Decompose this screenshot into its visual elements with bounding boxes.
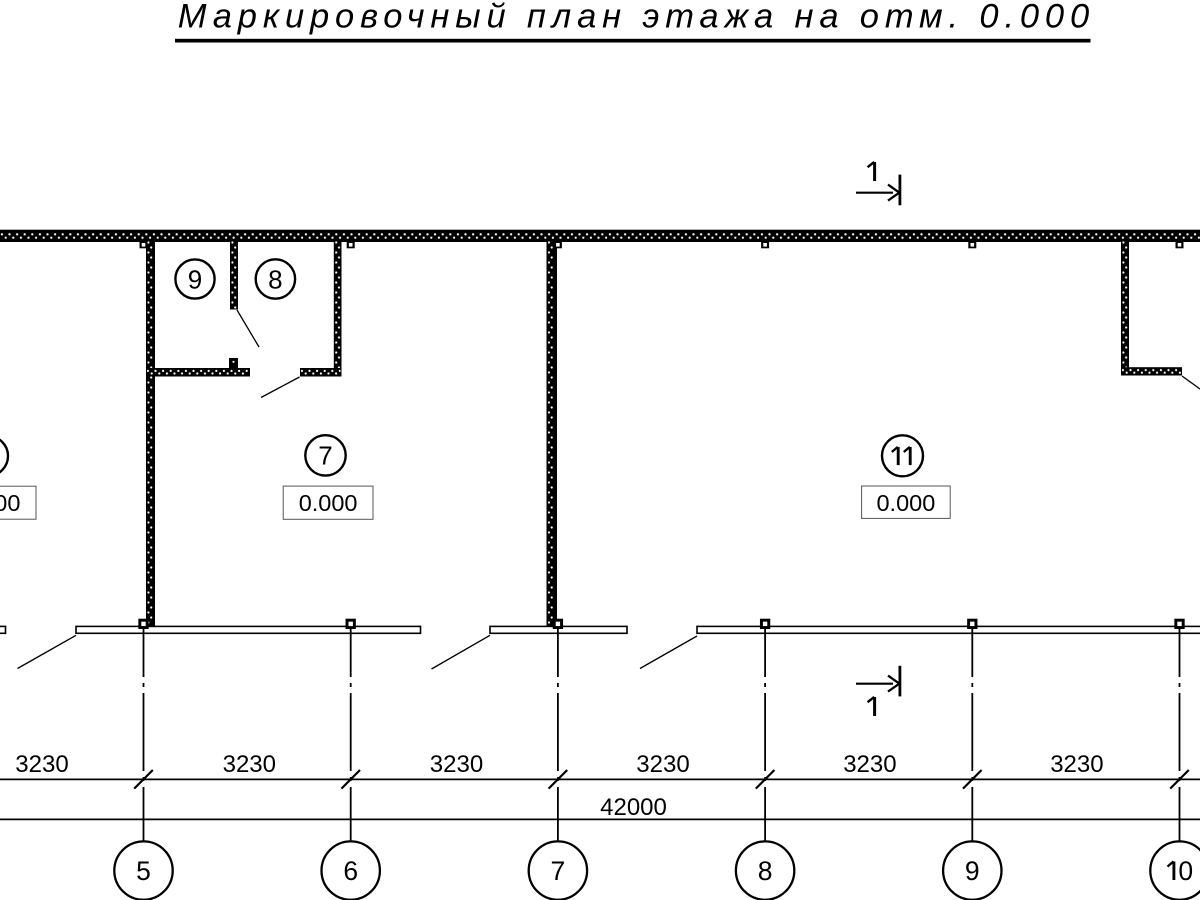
svg-text:6: 6	[343, 856, 358, 886]
svg-text:3230: 3230	[1050, 751, 1103, 778]
svg-text:5: 5	[136, 856, 151, 886]
svg-text:Маркировочный план этажа на от: Маркировочный план этажа на отм. 0.000	[178, 0, 1095, 35]
svg-text:3230: 3230	[15, 751, 68, 778]
svg-text:8: 8	[758, 856, 773, 886]
svg-text:3230: 3230	[636, 751, 689, 778]
svg-text:9: 9	[965, 856, 980, 886]
svg-text:3230: 3230	[430, 751, 483, 778]
svg-text:3230: 3230	[223, 751, 276, 778]
svg-text:9: 9	[188, 264, 202, 294]
svg-text:8: 8	[268, 264, 282, 294]
svg-text:7: 7	[318, 441, 332, 471]
svg-text:0: 0	[1178, 856, 1193, 886]
svg-text:3230: 3230	[843, 751, 896, 778]
svg-text:42000: 42000	[600, 794, 667, 821]
svg-text:0.000: 0.000	[0, 490, 20, 516]
svg-text:7: 7	[551, 856, 566, 886]
svg-text:0.000: 0.000	[876, 490, 935, 516]
svg-text:0.000: 0.000	[299, 490, 358, 516]
